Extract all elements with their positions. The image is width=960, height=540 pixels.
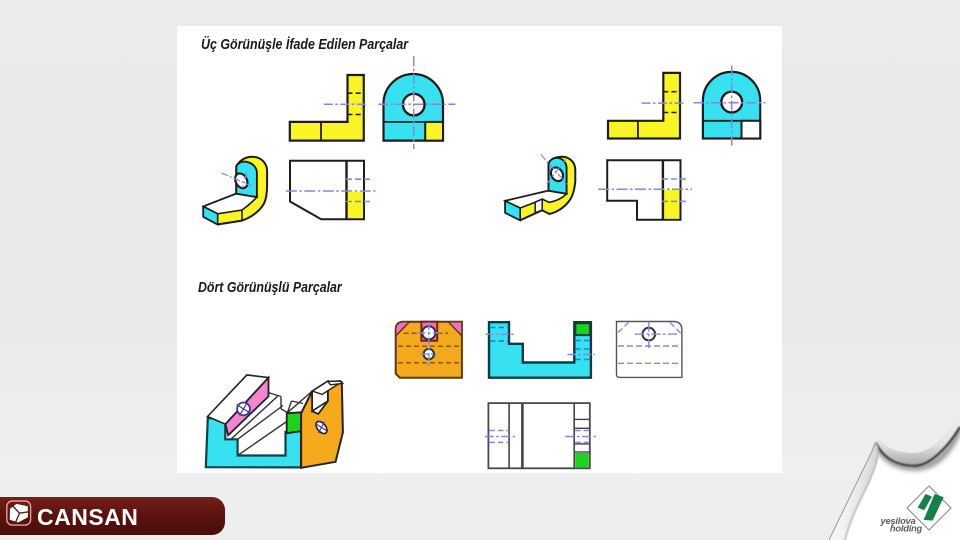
svg-text:holding: holding bbox=[890, 522, 923, 533]
